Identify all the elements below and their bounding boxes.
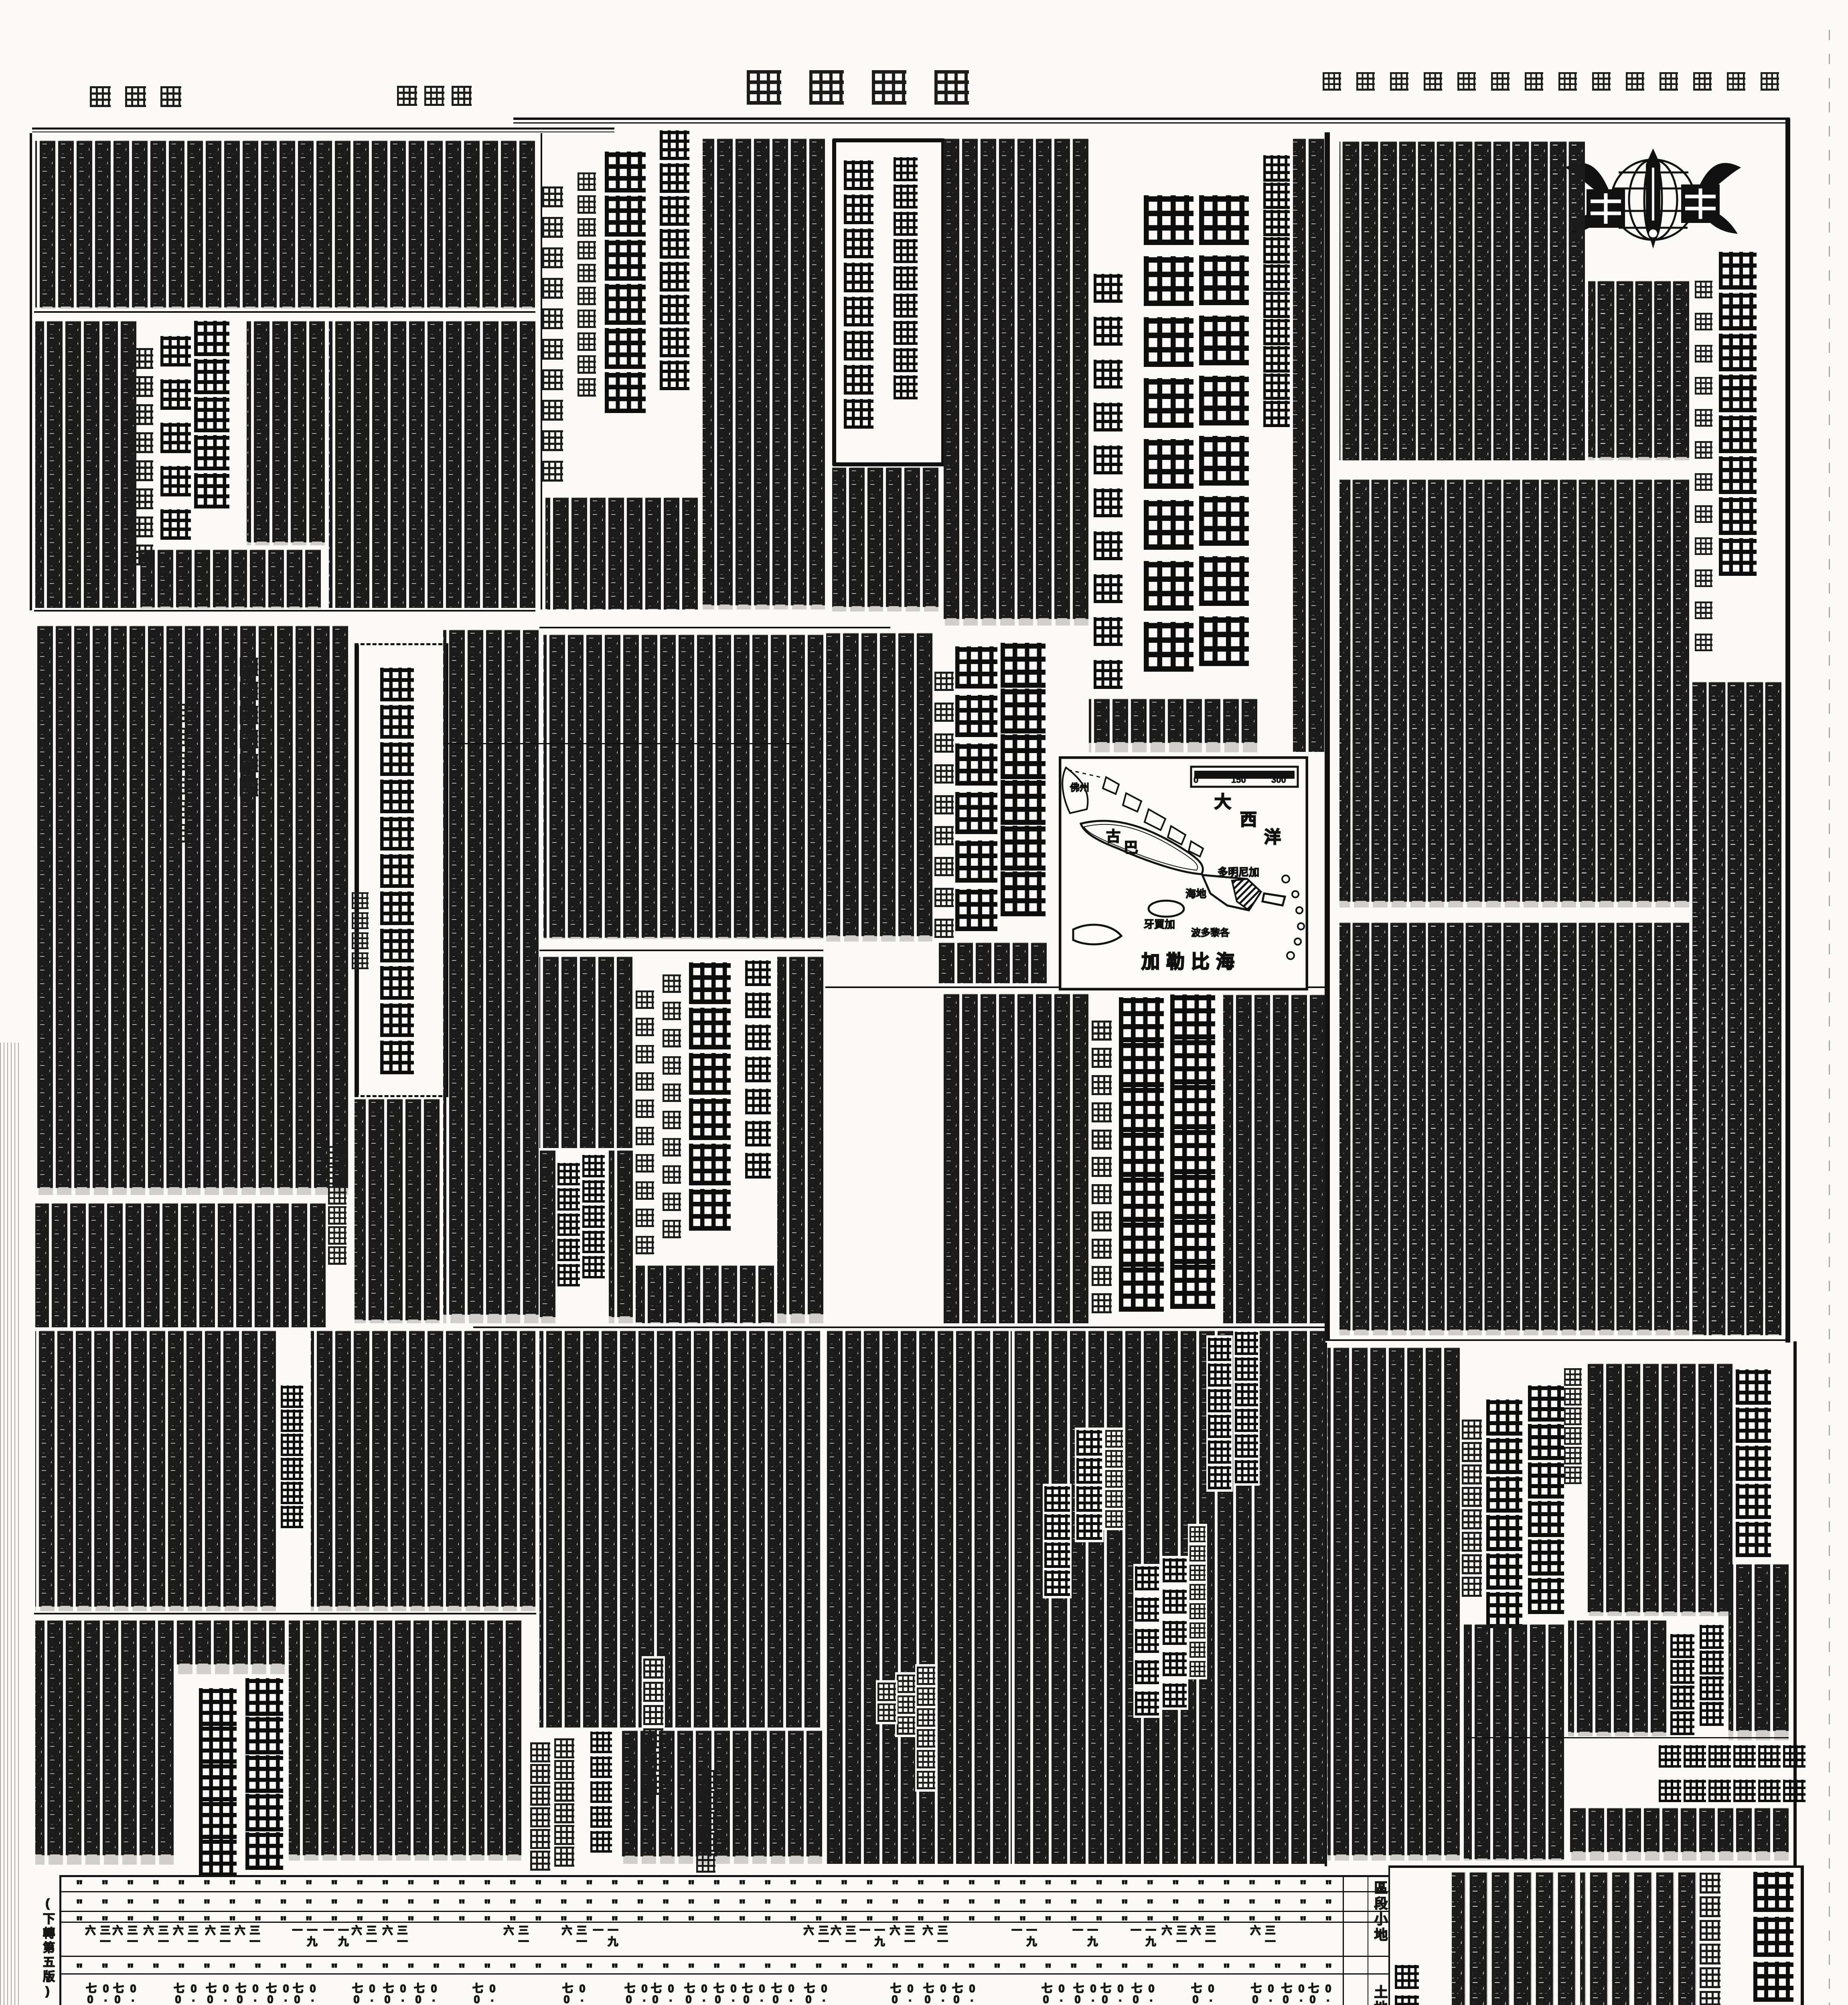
svg-text:0: 0	[1193, 775, 1198, 785]
svg-text:150: 150	[1231, 775, 1246, 785]
svg-text:牙買加: 牙買加	[1144, 918, 1175, 930]
svg-text:波多黎各: 波多黎各	[1191, 927, 1230, 938]
svg-text:佛州: 佛州	[1070, 782, 1089, 793]
svg-text:巴: 巴	[1124, 839, 1138, 856]
svg-text:古: 古	[1106, 828, 1121, 845]
svg-text:大: 大	[1214, 792, 1231, 811]
svg-text:300: 300	[1271, 775, 1286, 785]
svg-text:加勒比海: 加勒比海	[1141, 951, 1241, 972]
svg-text:西: 西	[1240, 810, 1257, 829]
svg-text:海地: 海地	[1185, 888, 1206, 900]
svg-text:多明尼加: 多明尼加	[1218, 866, 1259, 878]
svg-text:洋: 洋	[1264, 828, 1281, 847]
